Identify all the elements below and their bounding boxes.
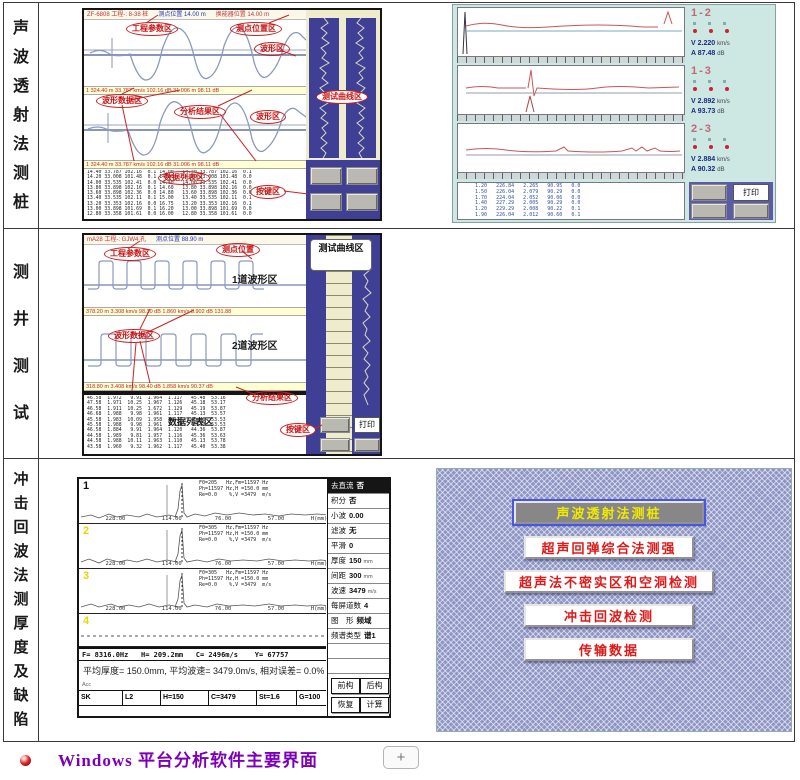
row-label-impact-echo: 冲击回波法测厚度及缺陷 (4, 458, 38, 742)
annotation-wave-area-2: 波形区 (250, 110, 286, 124)
screenshot-pile-result-ui: 1-2 V 2.220 km/sA 87.48 dB 1-3 V 2.892 k… (452, 4, 776, 223)
result-values-1: V 2.220 km/sA 87.48 dB (691, 39, 730, 59)
well-key-button-4[interactable] (354, 438, 380, 452)
result-values-2: V 2.892 km/sA 93.73 dB (691, 97, 730, 117)
impact-footer-cells: SK L2 H=150 C=3479 St=1.6 G=100 (79, 690, 326, 706)
annotation-test-curve-well: 测试曲线区 (310, 239, 372, 271)
pile-keys-area (306, 160, 380, 219)
annotation-point-position: 测点位置区 (230, 22, 282, 36)
param-row-filter[interactable]: 滤波无 (328, 524, 389, 539)
result-pair-id-2: 1-3 (691, 65, 713, 77)
result-symbols-2 (693, 80, 726, 83)
pile-title-probe: 换能器位置 14.00 m (216, 10, 269, 19)
well-statusbar-2: 318.80 m 3.408 km/s 98.40 dB 1.858 km/s … (84, 382, 306, 391)
footer-cell-0: SK (79, 691, 123, 705)
menu-button-rebound-strength[interactable]: 超声回弹综合法测强 (524, 536, 694, 559)
result-dots-2 (693, 87, 729, 91)
impact-average-line: 平均厚度= 150.0mm, 平均波速= 3479.0m/s, 相对误差= 0.… (79, 661, 326, 683)
result-data-list: 1.20 226.84 2.265 90.95 0.0 1.50 226.04 … (458, 183, 684, 219)
annotation-point-position-well: 测点位置 (216, 243, 260, 257)
annotation-test-curve: 测试曲线区 (316, 90, 368, 104)
annotation-keys-well: 按键区 (280, 423, 316, 437)
row-label-sonic-pile: 声波透射法测桩 (4, 2, 38, 228)
param-row-dc[interactable]: 去直流否 (328, 479, 389, 494)
result-keys-area: 打印 (689, 182, 773, 220)
result-plot-2 (457, 65, 685, 115)
impact-trace-3: 3 F0=305 Hz,Fm=11597 Hz Ph=11597 Hz,H =1… (79, 569, 326, 614)
table-column-divider (38, 2, 39, 742)
calculate-button[interactable]: 计算 (360, 697, 389, 713)
screenshot-impact-echo-ui: 1 F0=205 Hz,Fm=11597 Hz Ph=11597 Hz,H =1… (77, 477, 391, 718)
result-symbols-3 (693, 138, 726, 141)
annotation-project-params: 工程参数区 (126, 22, 178, 36)
param-row-wavelet[interactable]: 小波0.00 (328, 509, 389, 524)
curve-column-2 (346, 18, 376, 158)
well-key-button-3[interactable] (320, 438, 350, 452)
screenshot-sonic-pile-ui: ZF-6808 工程-: 8-38 桩 测点位置 14.00 m 换能器位置 1… (82, 8, 382, 221)
expand-plus-button[interactable]: + (383, 746, 419, 769)
pile-statusbar-2: 1 324.40 m 33.787 km/s 102.16 dB 31.006 … (84, 160, 306, 169)
menu-button-transfer-data[interactable]: 传输数据 (524, 638, 694, 661)
footer-cell-3: C=3479 (209, 691, 257, 705)
annotation-channel1-wave: 1道波形区 (232, 271, 278, 286)
annotation-analysis-result: 分析结果区 (174, 105, 226, 119)
result-ruler-2 (457, 115, 685, 121)
param-row-velocity[interactable]: 波速3479m/s (328, 584, 389, 599)
well-key-button-1[interactable] (320, 417, 350, 433)
row-label-well-logging: 测井测试 (4, 228, 38, 458)
impact-trace-4: 4 (79, 614, 326, 647)
impact-param-panel: 去直流否 积分否 小波0.00 滤波无 平滑0 厚度150mm 间距300mm … (327, 479, 389, 716)
result-key-button-3[interactable] (691, 203, 727, 219)
screenshot-main-menu-ui: 声波透射法测桩 超声回弹综合法测强 超声法不密实区和空洞检测 冲击回波检测 传输… (436, 468, 792, 732)
caption-text: Windows 平台分析软件主要界面 (58, 746, 318, 771)
pile-key-button-2[interactable] (346, 167, 378, 185)
annotation-channel2-wave: 2道波形区 (232, 337, 278, 352)
param-row-integral[interactable]: 积分否 (328, 494, 389, 509)
well-title-project: mA28 工程-: GJW4 孔 (87, 235, 146, 244)
pile-curve-panel (306, 10, 380, 219)
param-row-empty-2 (328, 659, 389, 674)
annotation-data-list-well: 数据列表区 (168, 415, 213, 428)
result-dots-3 (693, 145, 729, 149)
prev-frame-button[interactable]: 前构 (331, 678, 360, 694)
impact-status-line: F= 8316.0Hz H= 209.2mm C= 2496m/s Y= 677… (79, 647, 326, 661)
annotation-project-params-well: 工程参数区 (104, 247, 156, 261)
well-title-point: 测点位置 88.90 m (156, 235, 203, 244)
footer-cell-1: L2 (123, 691, 161, 705)
pile-title-project: ZF-6808 工程-: 8-38 桩 (87, 10, 148, 19)
annotation-wave-data-well: 波形数据区 (108, 329, 160, 343)
curve-column-1 (309, 18, 339, 158)
footer-cell-5: G=100 (297, 691, 326, 705)
well-print-button[interactable]: 打印 (354, 417, 380, 433)
row-divider-1 (3, 228, 795, 229)
result-key-button-4[interactable] (733, 203, 769, 219)
annotation-keys: 按键区 (250, 185, 286, 199)
document-page: 声波透射法测桩 测井测试 冲击回波法测厚度及缺陷 ZF-6808 工程-: 8-… (0, 0, 800, 780)
caption-bullet-icon (20, 755, 31, 766)
footer-cell-2: H=150 (161, 691, 209, 705)
pile-title-point: 测点位置 14.00 m (158, 10, 205, 19)
screenshot-well-logging-ui: mA28 工程-: GJW4 孔 测点位置 88.90 m 378.20 m 3… (82, 233, 382, 456)
annotation-analysis-result-well: 分析结果区 (246, 391, 298, 405)
menu-button-impact-echo[interactable]: 冲击回波检测 (524, 604, 694, 627)
result-dots-1 (693, 29, 729, 33)
result-plot-1 (457, 7, 685, 57)
param-row-channels[interactable]: 每屏道数4 (328, 599, 389, 614)
result-ruler-1 (457, 57, 685, 63)
menu-button-void-detection[interactable]: 超声法不密实区和空洞检测 (504, 570, 714, 593)
result-plot-3 (457, 123, 685, 173)
annotation-wave-area-1: 波形区 (254, 42, 290, 56)
pile-key-button-4[interactable] (346, 193, 378, 211)
footer-cell-4: St=1.6 (257, 691, 297, 705)
pile-key-button-1[interactable] (310, 167, 342, 185)
result-pair-id-3: 2-3 (691, 123, 713, 135)
param-row-empty-1 (328, 644, 389, 659)
restore-button[interactable]: 恢复 (331, 697, 360, 713)
pile-key-button-3[interactable] (310, 193, 342, 211)
param-row-spectrum-type[interactable]: 频谱类型谱1 (328, 629, 389, 644)
annotation-wave-data: 波形数据区 (96, 94, 148, 108)
annotation-data-list: 数据列表区 (158, 171, 210, 185)
impact-acc-label: Acc (82, 682, 91, 688)
result-values-3: V 2.884 km/sA 90.32 dB (691, 155, 730, 175)
param-row-thickness[interactable]: 厚度150mm (328, 554, 389, 569)
result-data-list-box: 1.20 226.84 2.265 90.95 0.0 1.50 226.04 … (457, 182, 685, 220)
param-row-graph[interactable]: 图 形频域 (328, 614, 389, 629)
next-frame-button[interactable]: 后构 (360, 678, 389, 694)
impact-trace-1: 1 F0=205 Hz,Fm=11597 Hz Ph=11597 Hz,H =1… (79, 479, 326, 524)
result-pair-id-1: 1-2 (691, 7, 713, 19)
impact-trace-2: 2 F0=305 Hz,Fm=11597 Hz Ph=11597 Hz,H =1… (79, 524, 326, 569)
result-symbols-1 (693, 22, 726, 25)
print-button[interactable]: 打印 (733, 184, 769, 201)
result-ruler-3 (457, 173, 685, 179)
well-statusbar-1: 378.20 m 3.308 km/s 98.30 dB 1.860 km/s … (84, 307, 306, 316)
menu-button-sonic-pile[interactable]: 声波透射法测桩 (514, 501, 704, 524)
param-row-spacing[interactable]: 间距300mm (328, 569, 389, 584)
result-key-button-1[interactable] (691, 184, 727, 201)
row-divider-2 (3, 458, 795, 459)
well-curve-panel: 测试曲线区 打印 (306, 235, 380, 454)
param-row-smooth[interactable]: 平滑0 (328, 539, 389, 554)
